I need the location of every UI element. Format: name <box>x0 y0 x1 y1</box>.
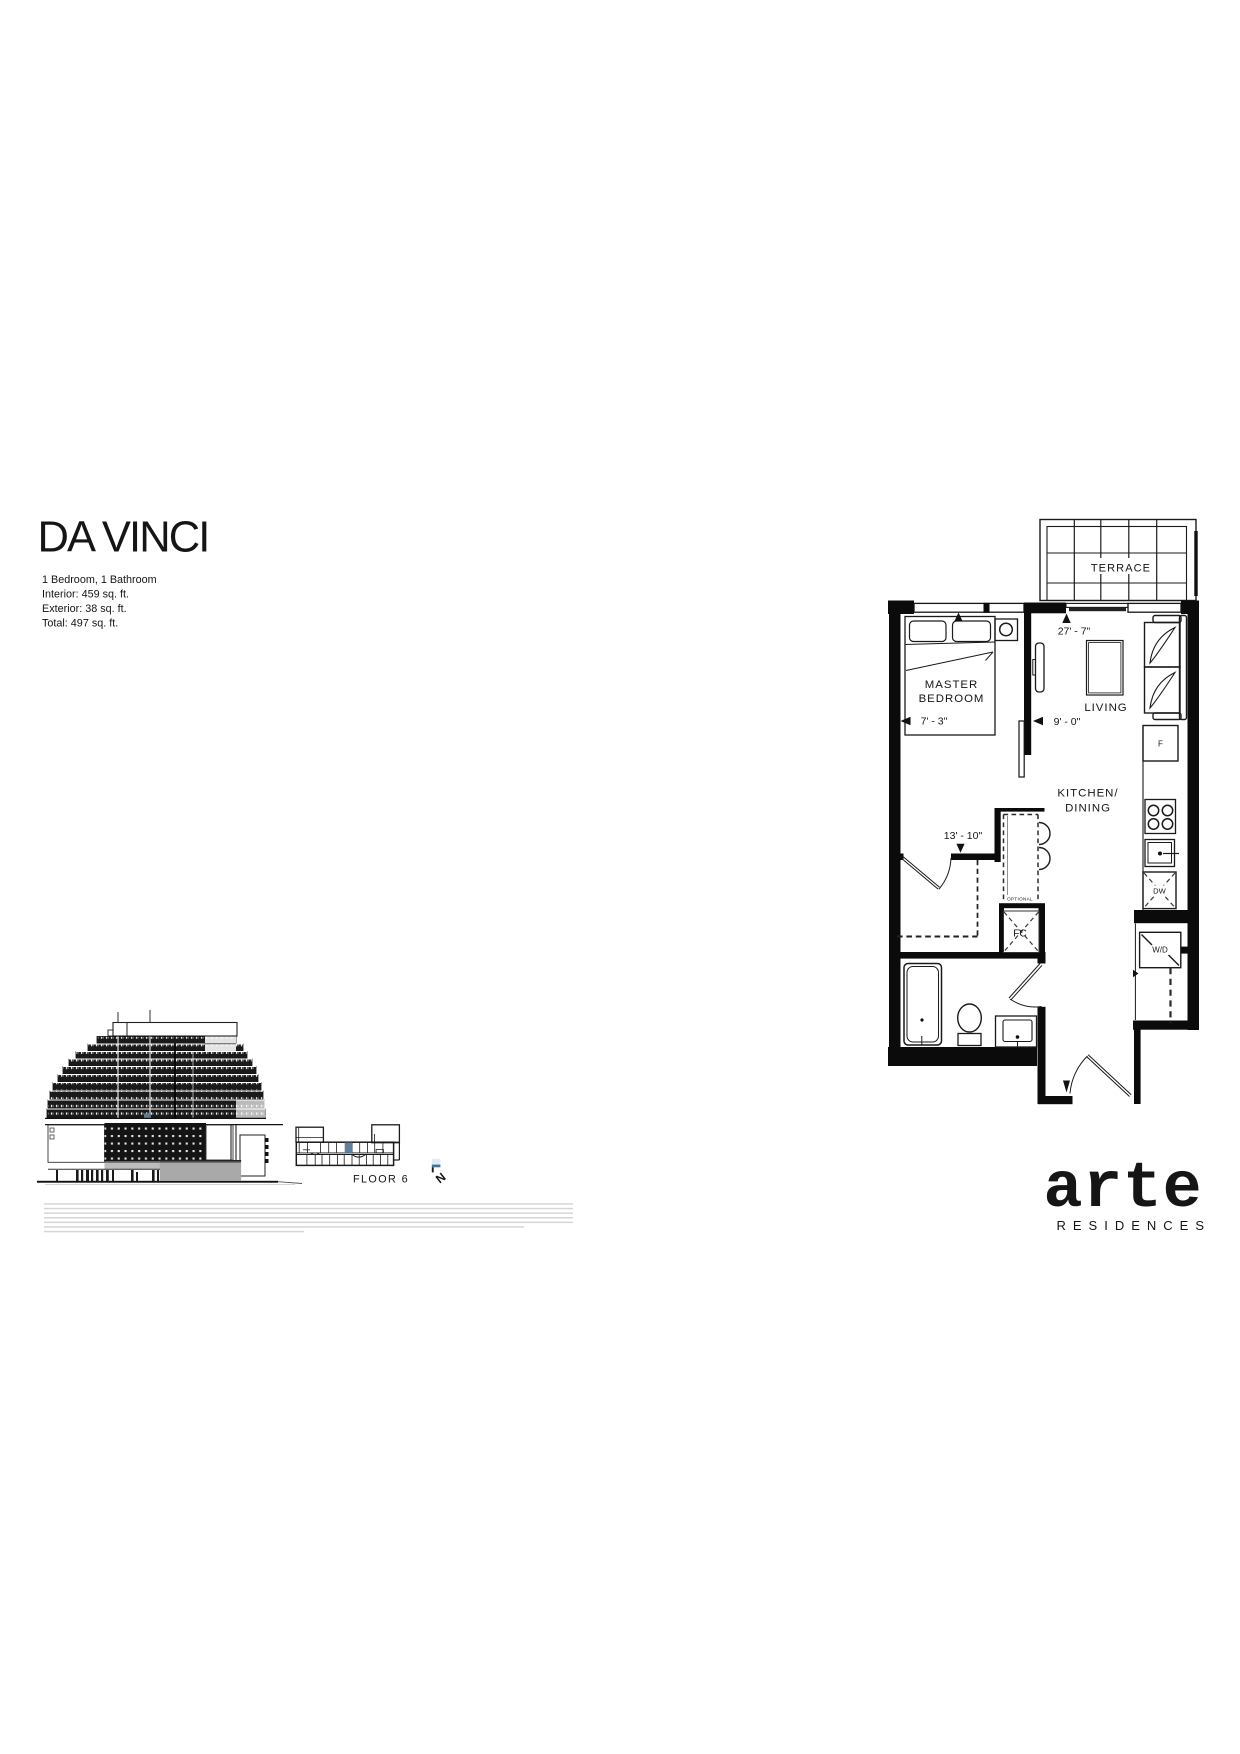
svg-text:FC: FC <box>1013 929 1027 940</box>
svg-text:FLOOR 6: FLOOR 6 <box>353 1174 409 1186</box>
svg-text:DINING: DINING <box>1065 803 1111 815</box>
svg-text:Total: 497 sq. ft.: Total: 497 sq. ft. <box>42 618 118 630</box>
svg-text:MASTER: MASTER <box>925 679 978 691</box>
svg-text:arte: arte <box>1044 1152 1203 1226</box>
svg-text:13' - 10": 13' - 10" <box>944 830 983 842</box>
svg-text:KITCHEN/: KITCHEN/ <box>1057 788 1118 800</box>
svg-text:TERRACE: TERRACE <box>1091 563 1151 575</box>
svg-text:DA VINCI: DA VINCI <box>38 514 209 562</box>
svg-text:Exterior: 38 sq. ft.: Exterior: 38 sq. ft. <box>42 603 127 615</box>
svg-text:Interior: 459 sq. ft.: Interior: 459 sq. ft. <box>42 589 129 601</box>
svg-text:W/D: W/D <box>1152 946 1168 955</box>
svg-text:F: F <box>1158 740 1163 749</box>
svg-text:RESIDENCES: RESIDENCES <box>1057 1218 1212 1233</box>
svg-text:9' - 0": 9' - 0" <box>1054 716 1081 728</box>
svg-text:7' - 3": 7' - 3" <box>921 716 948 728</box>
svg-text:LIVING: LIVING <box>1084 702 1127 714</box>
svg-text:DW: DW <box>1153 887 1166 896</box>
svg-text:1 Bedroom, 1 Bathroom: 1 Bedroom, 1 Bathroom <box>42 574 157 586</box>
svg-text:OPTIONAL: OPTIONAL <box>1007 897 1033 902</box>
svg-text:BEDROOM: BEDROOM <box>919 693 985 705</box>
svg-text:27' - 7": 27' - 7" <box>1058 626 1091 638</box>
